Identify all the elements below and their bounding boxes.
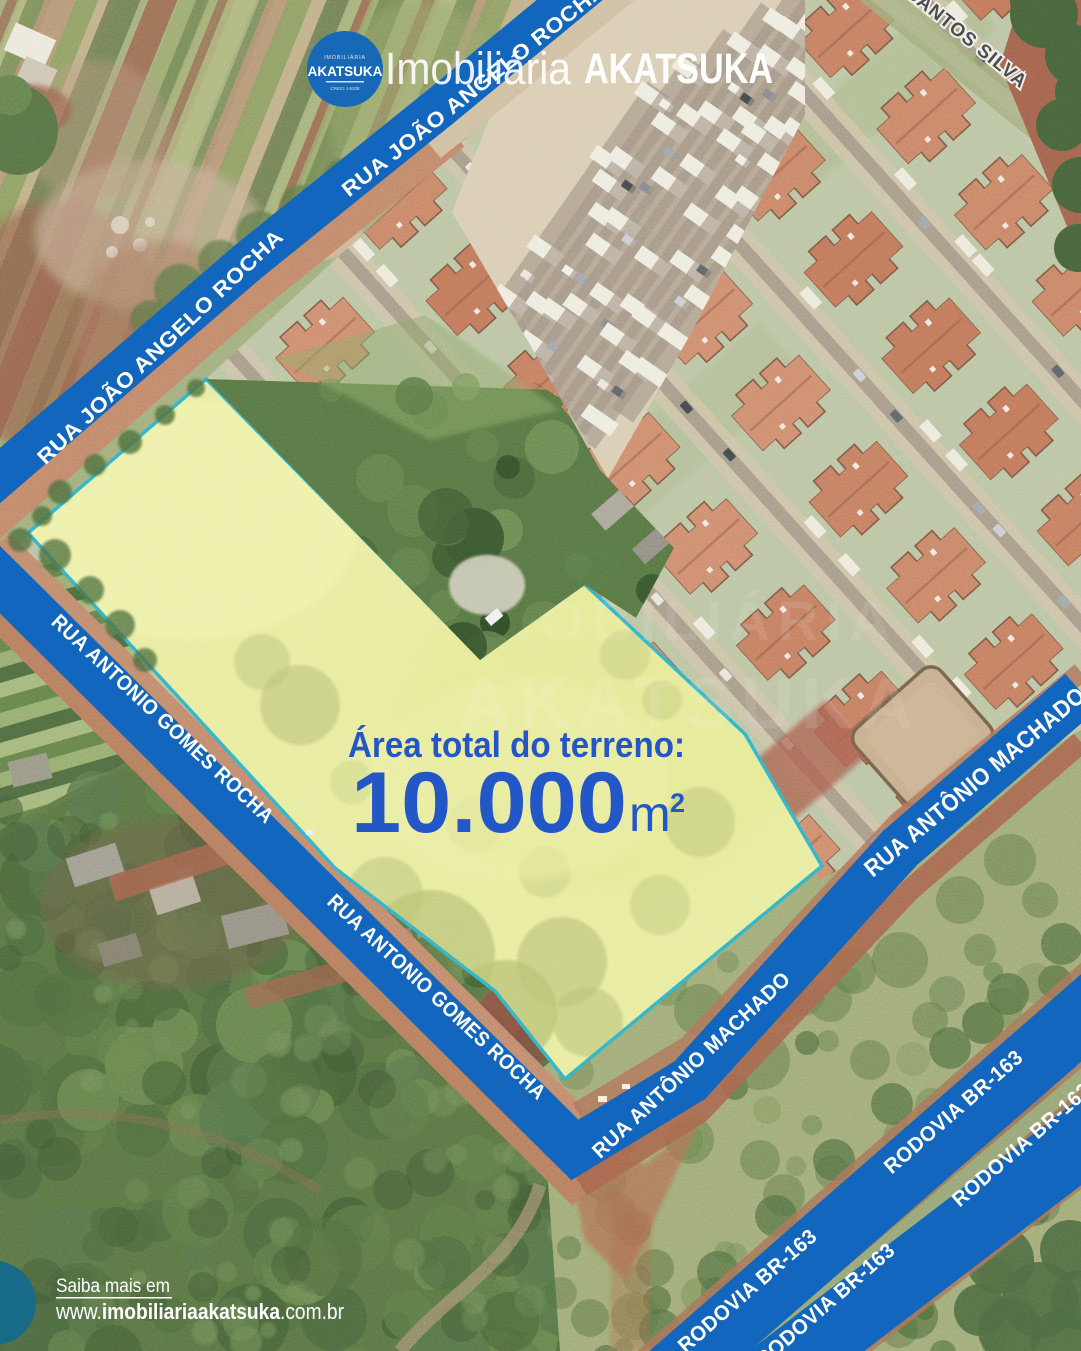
svg-text:CRECI J-5208: CRECI J-5208 (330, 86, 360, 91)
svg-text:2: 2 (670, 788, 685, 818)
svg-text:AKATSUKA: AKATSUKA (584, 45, 773, 93)
svg-text:www.imobiliariaakatsuka.com.br: www.imobiliariaakatsuka.com.br (55, 1299, 344, 1324)
svg-text:Imobiliária: Imobiliária (385, 43, 572, 94)
svg-text:m: m (629, 786, 671, 842)
svg-text:IMOBILIÁRIA: IMOBILIÁRIA (324, 54, 366, 61)
svg-text:AKATSUKA: AKATSUKA (308, 64, 383, 79)
svg-text:10.000: 10.000 (351, 755, 627, 851)
svg-text:Saiba mais em: Saiba mais em (56, 1276, 170, 1297)
